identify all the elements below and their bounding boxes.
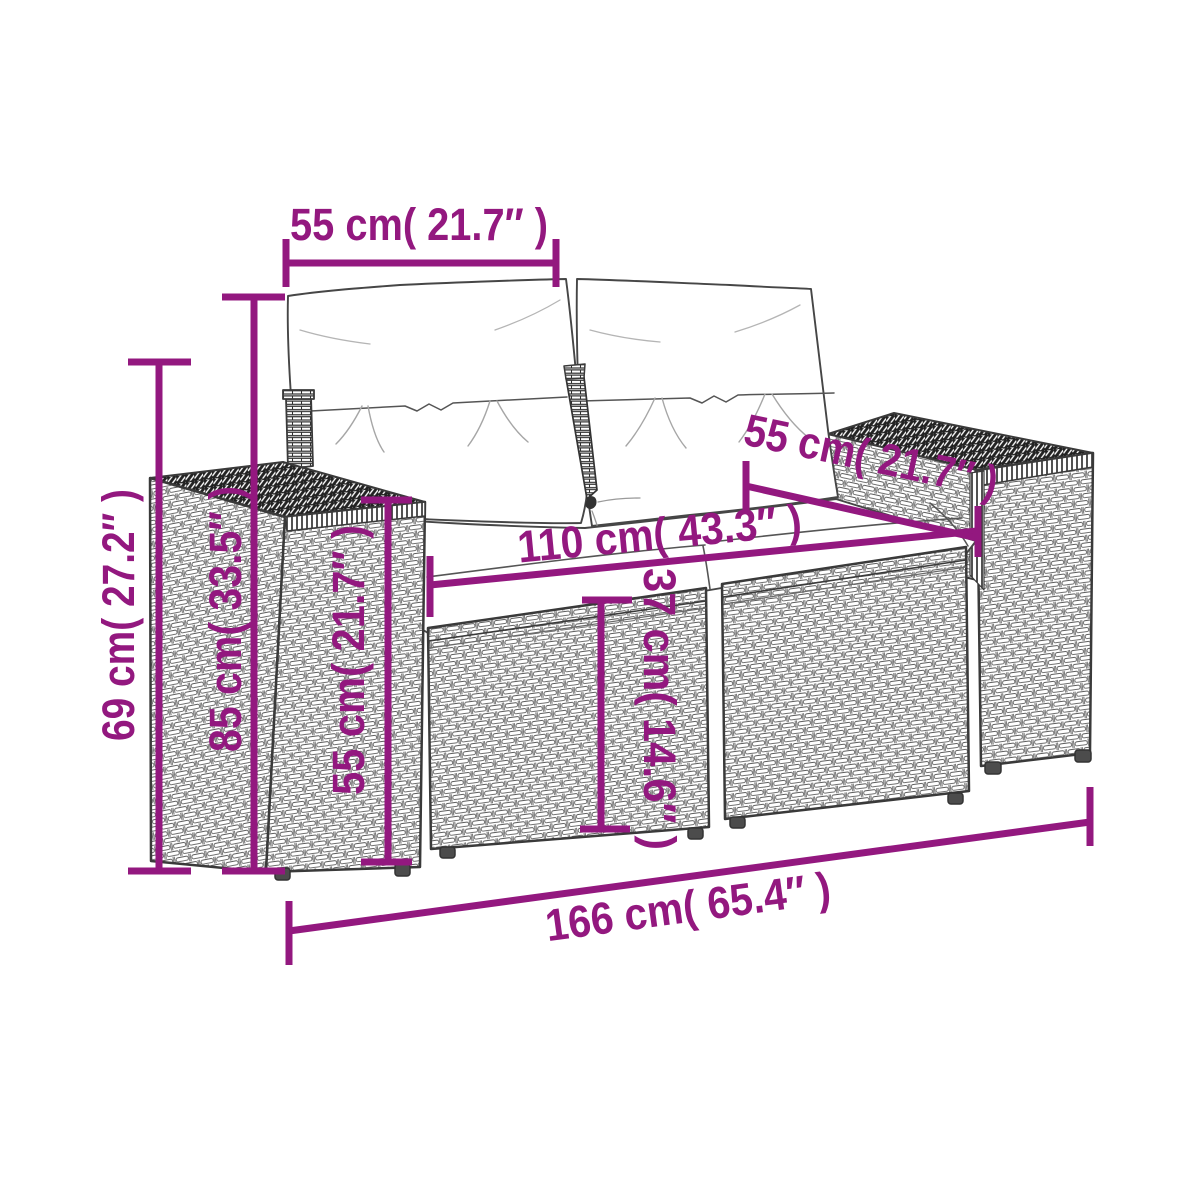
svg-text:55 cm( 21.7″ ): 55 cm( 21.7″ ) [290, 199, 548, 250]
svg-text:37 cm( 14.6″ ): 37 cm( 14.6″ ) [634, 568, 685, 850]
svg-text:69 cm( 27.2″ ): 69 cm( 27.2″ ) [93, 489, 144, 741]
svg-text:55 cm( 21.7″ ): 55 cm( 21.7″ ) [323, 525, 374, 795]
svg-text:85 cm( 33.5″ ): 85 cm( 33.5″ ) [200, 486, 251, 752]
